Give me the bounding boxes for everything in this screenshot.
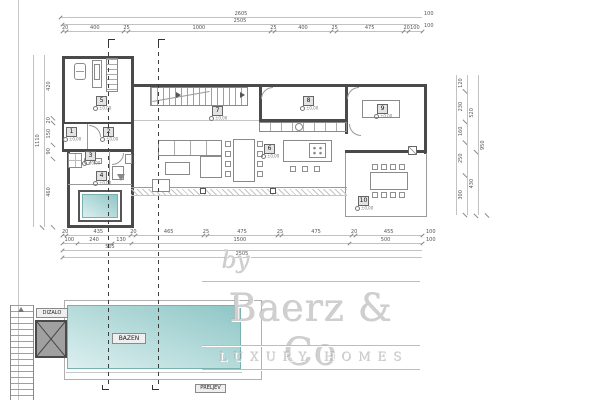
- section-marker-icon: [102, 385, 109, 390]
- kitchen-sink: [295, 123, 303, 131]
- elevation-icon: [63, 137, 68, 142]
- chair: [225, 161, 231, 167]
- cooktop: [309, 143, 326, 158]
- dimension-label: 400: [274, 25, 331, 31]
- elevation-marker: ±0,00: [100, 137, 118, 142]
- facade-post: [270, 188, 276, 194]
- overflow-label: PRELJEV: [195, 384, 226, 393]
- dimension-label-right-edge-1: 100: [424, 12, 434, 16]
- terrace-edge: [345, 153, 346, 217]
- dimension-col-right-2: 520430: [467, 75, 476, 215]
- stool: [302, 166, 308, 172]
- door-swing: [89, 125, 101, 137]
- elevation-marker: ±0,00: [261, 154, 279, 159]
- wall: [131, 119, 134, 227]
- dimension-label: 100: [408, 25, 422, 31]
- dimension-label: 400: [66, 25, 123, 31]
- dimension-label-right-edge-3: 100: [426, 230, 436, 234]
- chair: [399, 164, 405, 170]
- elevation-marker: ±0,00: [355, 206, 373, 211]
- elevation-marker: ±0,00: [63, 137, 81, 142]
- dimension-label: 230: [457, 91, 465, 121]
- bar-stools: [290, 166, 320, 172]
- stool: [314, 166, 320, 172]
- sofa: [200, 156, 222, 178]
- stool: [290, 166, 296, 172]
- section-line-2: [158, 44, 159, 388]
- section-marker-icon: [152, 385, 159, 390]
- chair: [257, 161, 263, 167]
- terrace-edge: [345, 216, 427, 217]
- dining-chairs: [257, 141, 263, 177]
- dimension-label: 120: [457, 75, 465, 91]
- floor-plan-canvas: 2605 2505 20400251000254002547520100 100…: [0, 0, 600, 400]
- chair: [381, 164, 387, 170]
- dining-table: [233, 139, 255, 182]
- chair: [225, 141, 231, 147]
- section-line-1: [108, 44, 109, 388]
- chair: [257, 171, 263, 177]
- elevation-icon: [93, 181, 98, 186]
- kitchen-counter: [259, 122, 347, 132]
- washbasin: [125, 154, 132, 164]
- dimension-label: 250: [457, 142, 465, 175]
- chair: [381, 192, 387, 198]
- terrace-edge: [426, 153, 427, 217]
- elevation-marker: ±0,00: [82, 161, 100, 166]
- chair: [390, 164, 396, 170]
- stair-up-arrow-icon: [18, 307, 24, 312]
- elevation-marker: ±0,00: [300, 106, 318, 111]
- room-number-8: 8: [303, 96, 314, 106]
- dimension-label-right-edge-4: 100: [426, 238, 436, 242]
- room-number-7: 7: [212, 106, 223, 116]
- chair: [372, 192, 378, 198]
- elevation-icon: [100, 137, 105, 142]
- chair: [257, 141, 263, 147]
- elevation-marker: ±0,00: [374, 114, 392, 119]
- drain-funnel-icon: [117, 174, 125, 181]
- dimension-label: 90: [45, 145, 53, 158]
- chair: [372, 164, 378, 170]
- room-number-6: 6: [264, 144, 275, 154]
- dimension-col-left-overall: 1110: [33, 55, 42, 227]
- watermark-rule: [202, 345, 420, 346]
- chair: [399, 192, 405, 198]
- watermark-tagline: LUXURY HOMES: [202, 350, 420, 364]
- dimension-col-right-overall: 950: [478, 75, 487, 215]
- floor-opening-edge: [134, 120, 259, 121]
- room-number-4: 4: [96, 171, 107, 181]
- wall-partition: [87, 124, 88, 149]
- stair-arrow-icon: [240, 92, 245, 98]
- spa-pool: [78, 190, 122, 222]
- exterior-staircase: [10, 305, 34, 400]
- section-marker-icon: [158, 39, 165, 44]
- glass-facade-line: [131, 195, 347, 196]
- elevation-icon: [374, 114, 379, 119]
- chair: [225, 171, 231, 177]
- wall: [259, 84, 262, 122]
- sofa: [158, 140, 222, 156]
- dimension-label: 475: [336, 25, 404, 31]
- wall: [131, 56, 134, 124]
- facade-post: [200, 188, 206, 194]
- elevation-icon: [209, 116, 214, 121]
- dining-chairs: [225, 141, 231, 177]
- wall: [62, 56, 134, 59]
- window-marker-icon: [408, 146, 417, 155]
- dimension-label: 300: [457, 175, 465, 215]
- wall: [62, 149, 134, 152]
- elevation-icon: [300, 106, 305, 111]
- dimension-label: 160: [457, 121, 465, 142]
- wall: [62, 122, 134, 124]
- elevation-icon: [93, 106, 98, 111]
- elevator-x-icon: [37, 322, 65, 356]
- watermark-rule: [202, 369, 420, 370]
- door-swing: [261, 87, 273, 99]
- wall-partition: [109, 151, 110, 184]
- door-swing: [347, 87, 359, 99]
- dimension-col-left-segments: 4202015090460: [44, 55, 53, 227]
- door-swing: [349, 124, 361, 136]
- stair-arrow-icon: [176, 92, 181, 98]
- chair: [225, 151, 231, 157]
- shower: [68, 153, 82, 168]
- dimension-label: 460: [45, 158, 53, 227]
- watermark-by: by: [222, 248, 250, 274]
- dimension-label-right-edge-2: 100: [424, 24, 434, 28]
- section-marker-icon: [108, 39, 115, 44]
- coffee-table: [165, 162, 190, 175]
- room-number-9: 9: [377, 104, 388, 114]
- elevation-marker: ±0,00: [209, 116, 227, 121]
- dimension-label: 150: [45, 122, 53, 144]
- wall: [424, 84, 427, 154]
- ottoman: [152, 179, 170, 192]
- room-number-10: 10: [358, 196, 369, 206]
- dimension-row-top-segments: 20400251000254002547520100: [62, 22, 422, 32]
- dimension-label: 420: [45, 55, 53, 118]
- chair: [390, 192, 396, 198]
- dimension-label: 1110: [34, 55, 42, 227]
- elevator-label: DIZALO: [36, 308, 68, 318]
- room-number-3: 3: [85, 151, 96, 161]
- watermark-rule: [202, 281, 420, 282]
- elevation-icon: [261, 154, 266, 159]
- dimension-label: 1000: [128, 25, 271, 31]
- door-swing: [112, 153, 124, 165]
- elevator-shaft: [35, 320, 67, 358]
- dimension-label: 520: [468, 75, 476, 152]
- spa-pool-water: [82, 194, 118, 218]
- gym-equipment-detail: [76, 71, 84, 72]
- dimension-label: 950: [479, 75, 487, 215]
- dimension-col-right-1: 120230160250300: [456, 75, 465, 215]
- room-number-5: 5: [96, 96, 107, 106]
- pool-label: BAZEN: [112, 333, 146, 344]
- outdoor-chairs: [372, 192, 405, 198]
- wall: [62, 56, 65, 124]
- dimension-label: 430: [468, 152, 476, 215]
- gym-equipment-detail: [94, 64, 100, 80]
- outdoor-table: [370, 172, 408, 190]
- elevation-icon: [82, 161, 87, 166]
- staircase: [150, 87, 248, 106]
- room-number-1: 1: [66, 127, 77, 137]
- outdoor-chairs: [372, 164, 405, 170]
- elevation-icon: [355, 206, 360, 211]
